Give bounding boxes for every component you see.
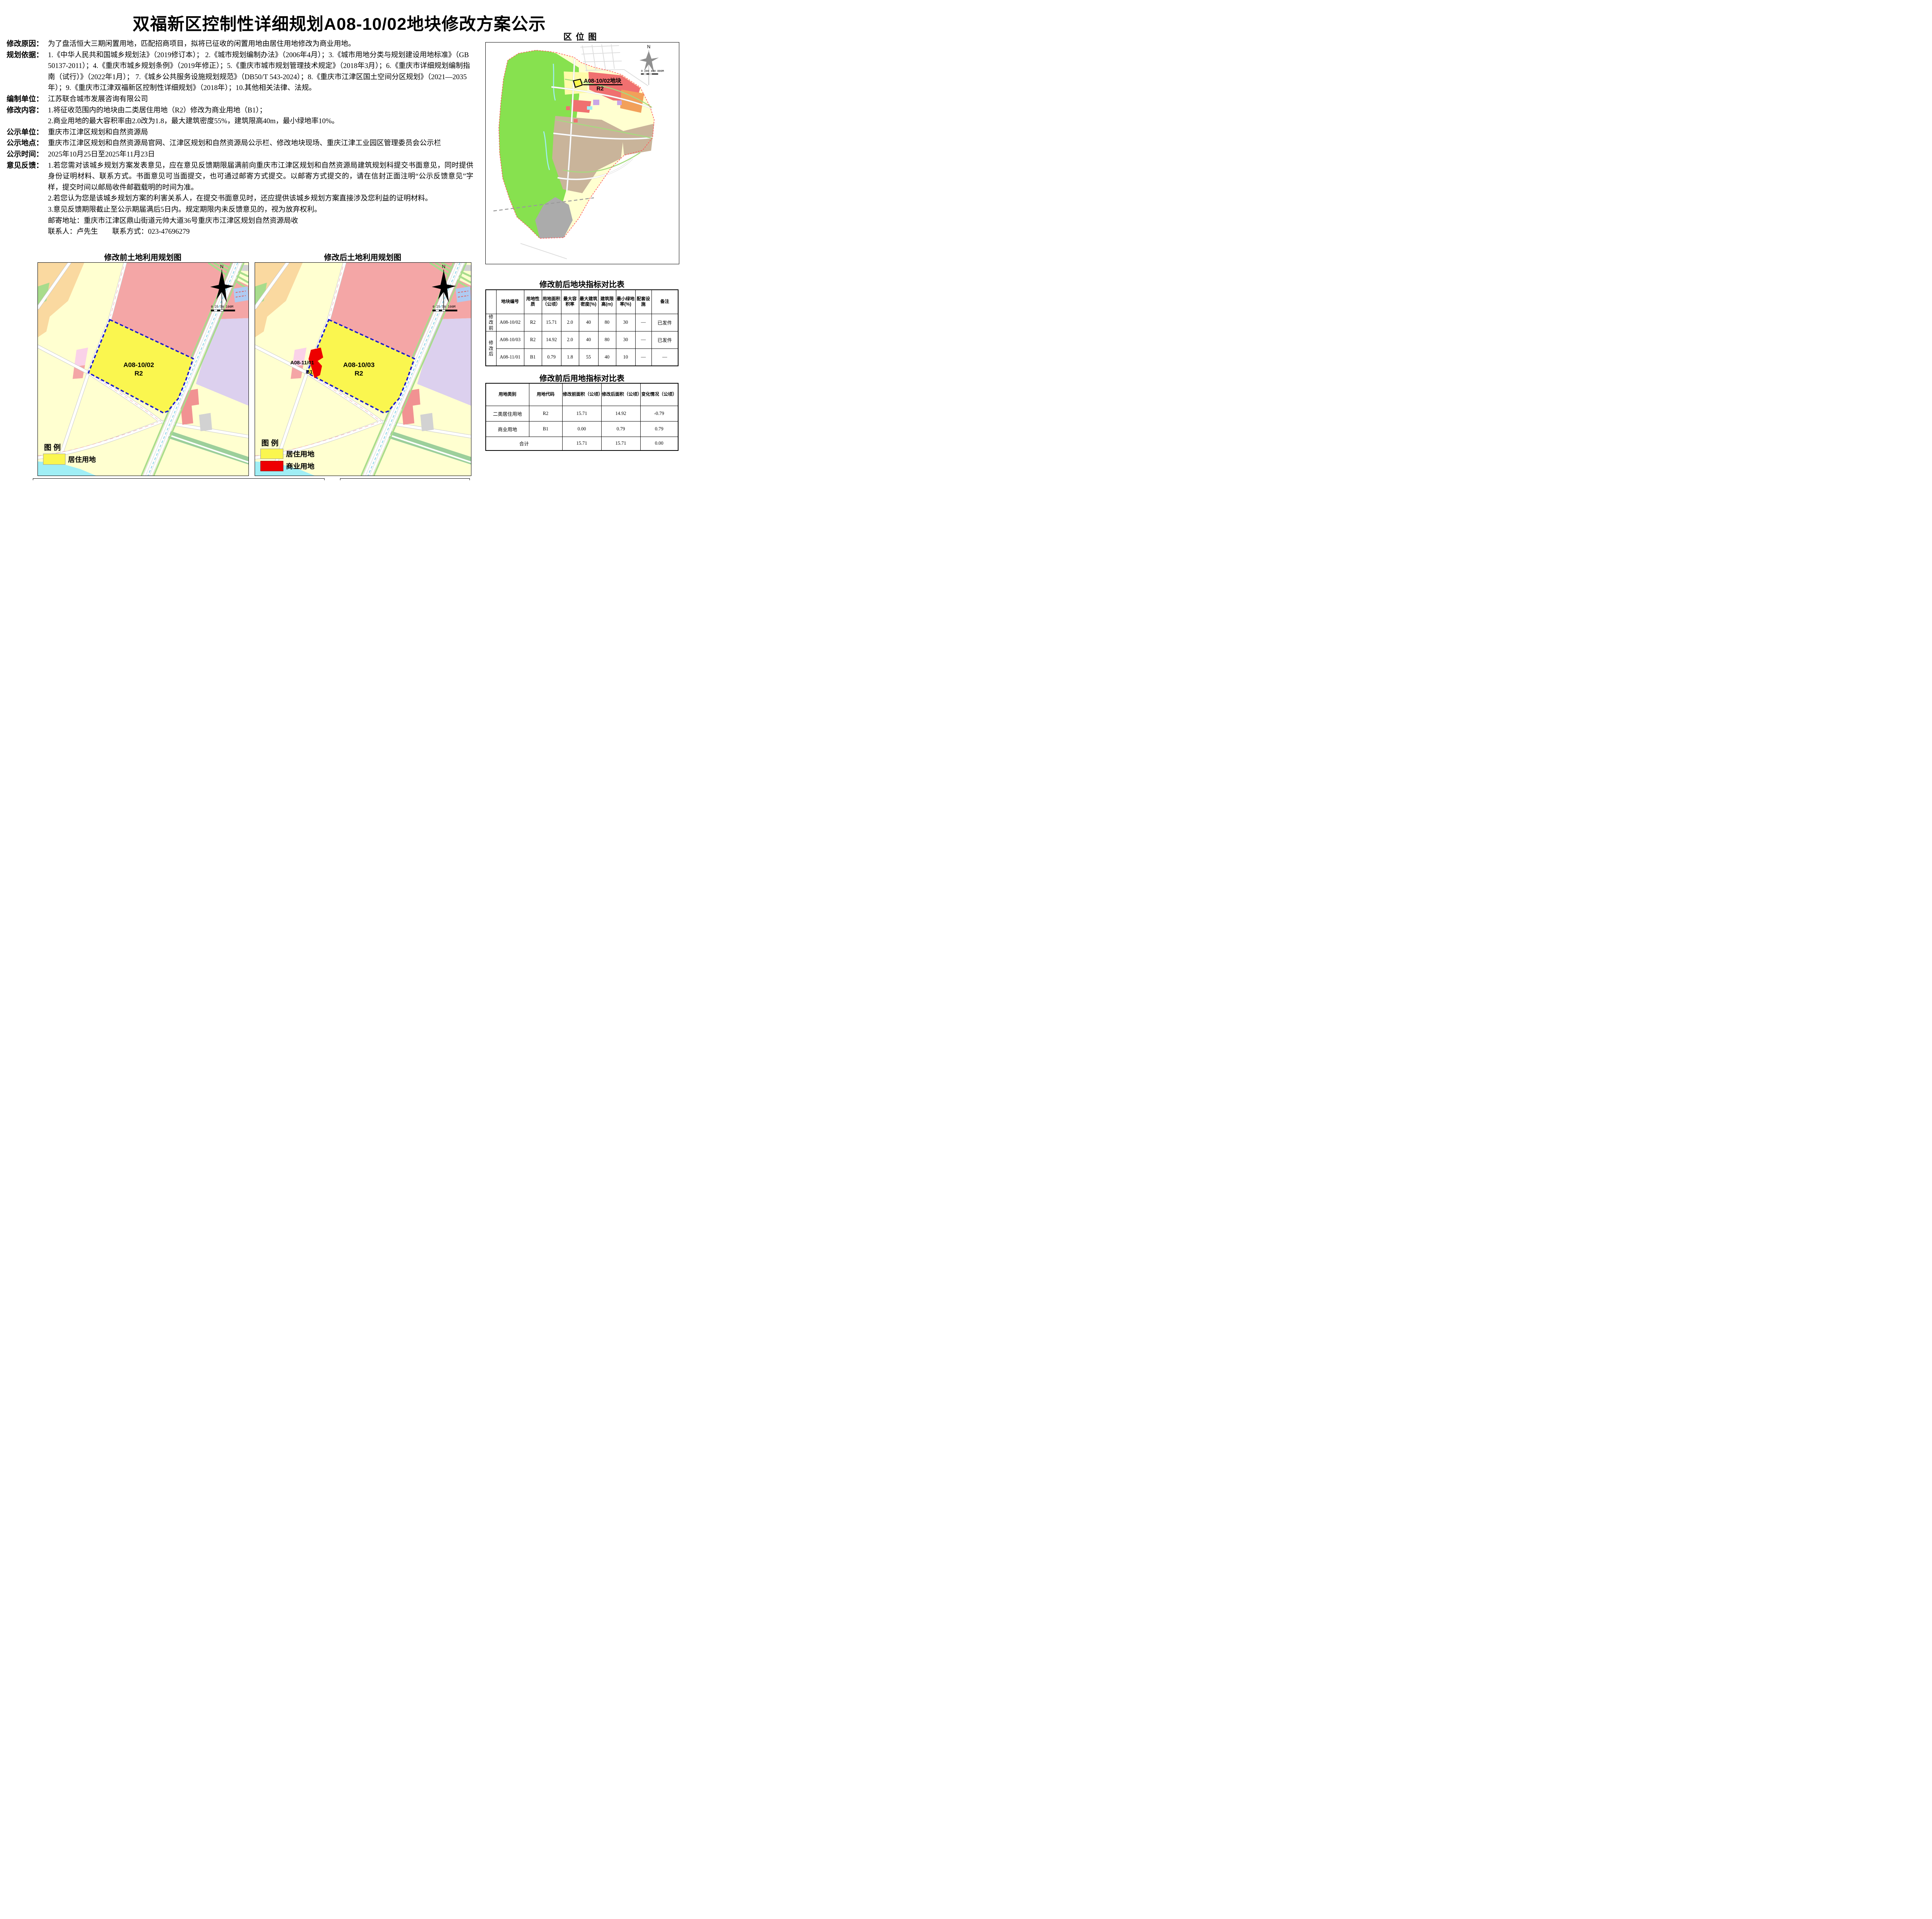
info-paragraph: 1.将征收范围内的地块由二类居住用地（R2）修改为商业用地（B1）； (48, 105, 473, 116)
cell: R2 (524, 331, 542, 348)
plot-code-label: R2 (597, 86, 604, 92)
svg-text:N: N (220, 264, 224, 269)
info-paragraph: 1.《中华人民共和国城乡规划法》（2019修订本）； 2.《城市规划编制办法》（… (48, 50, 473, 94)
header-cell (486, 290, 496, 314)
cell: 0.00 (640, 437, 678, 450)
plot2-code-label: B1 (306, 369, 313, 375)
cell: 14.92 (601, 406, 640, 421)
cell: 30 (616, 314, 635, 331)
scale-bar: 0 25 50 100M (433, 305, 457, 311)
cell: 14.92 (542, 331, 561, 348)
plot-id-label: A08-10/02 (123, 361, 154, 369)
notice-info-block: 修改原因： 为了盘活恒大三期闲置用地，匹配招商项目，拟将已征收的闲置用地由居住用… (7, 39, 473, 238)
header-cell: 建筑限高(m) (598, 290, 616, 314)
parcel-red (566, 106, 570, 110)
cell: A08-10/03 (496, 331, 524, 348)
info-paragraph: 重庆市江津区规划和自然资源局 (48, 127, 473, 138)
info-paragraph: 3.意见反馈期限截止至公示期届满后5日内。规定期限内未反馈意见的，视为放弃权利。 (48, 204, 473, 216)
info-paragraph: 2025年10月25日至2025年11月23日 (48, 149, 473, 160)
table-row: 修改前 A08-10/02 R2 15.71 2.0 40 80 30 — 已发… (486, 314, 678, 331)
cell: 10 (616, 348, 635, 366)
parcel-gray (420, 413, 434, 431)
after-map-panel: A08-10/03 R2 A08-11/01 B1 N 0 25 50 100M… (255, 262, 471, 476)
legend-swatch-residential (260, 449, 283, 459)
legend-title: 图 例 (44, 443, 61, 452)
plot-code-label: R2 (134, 370, 143, 377)
info-row-location: 公示地点： 重庆市江津区规划和自然资源局官网、江津区规划和自然资源局公示栏、修改… (7, 138, 473, 149)
cell: A08-11/01 (496, 348, 524, 366)
cell: 15.71 (601, 437, 640, 450)
plot-code-label: R2 (355, 370, 363, 377)
row-group-before: 修改前 (486, 314, 496, 331)
cell: 2.0 (561, 331, 579, 348)
info-label: 意见反馈： (7, 160, 48, 172)
legend-swatch-residential (43, 454, 65, 465)
info-label: 规划依据： (7, 50, 48, 61)
before-map-graphic: A08-10/02 R2 N 0 25 50 100M 图 例 居住用地 (38, 263, 248, 476)
landuse-table: 用地类别 用地代码 修改前面积（公顷） 修改后面积（公顷） 变化情况（公顷） 二… (485, 383, 679, 451)
cell: 40 (598, 348, 616, 366)
cell: 80 (598, 331, 616, 348)
cell: 0.79 (640, 421, 678, 437)
cell: 15.71 (562, 437, 601, 450)
legend-label-commercial: 商业用地 (286, 462, 315, 471)
cell: R2 (524, 314, 542, 331)
header-cell: 地块编号 (496, 290, 524, 314)
plot-id-label: A08-10/03 (343, 361, 374, 369)
cell: 40 (579, 314, 598, 331)
cell: 80 (598, 314, 616, 331)
header-cell: 修改后面积（公顷） (601, 383, 640, 406)
pond (456, 286, 471, 303)
cell: 40 (579, 331, 598, 348)
cell: — (635, 331, 651, 348)
header-cell: 用地性质 (524, 290, 542, 314)
total-label: 合计 (486, 437, 562, 450)
legend-title: 图 例 (261, 439, 278, 447)
cell: 55 (579, 348, 598, 366)
cell: — (635, 348, 651, 366)
header-cell: 配套设施 (635, 290, 651, 314)
table-total-row: 合计 15.71 15.71 0.00 (486, 437, 678, 450)
before-map-title: 修改前土地利用规划图 (37, 251, 248, 262)
svg-text:0 200 400 800M: 0 200 400 800M (641, 70, 664, 73)
plot-label: A08-10/02地块 (584, 77, 621, 84)
cutoff-box-left (33, 478, 325, 480)
header-cell: 用地类别 (486, 383, 529, 406)
cell: 30 (616, 331, 635, 348)
cell: B1 (529, 421, 562, 437)
info-paragraph: 2.商业用地的最大容积率由2.0改为1.8，最大建筑密度55%，建筑限高40m，… (48, 116, 473, 127)
header-cell: 最大建筑密度(%) (579, 290, 598, 314)
legend-swatch-commercial (260, 461, 283, 471)
north-arrow-icon: N (639, 44, 659, 85)
pond-icon (587, 106, 592, 110)
info-label: 修改原因： (7, 39, 48, 50)
table-row: 二类居住用地 R2 15.71 14.92 -0.79 (486, 406, 678, 421)
location-map-graphic: A08-10/02地块 R2 N 0 200 400 800M (486, 42, 679, 264)
cell: 二类居住用地 (486, 406, 529, 421)
cell: R2 (529, 406, 562, 421)
info-paragraph: 2.若您认为您是该城乡规划方案的利害关系人，在提交书面意见时，还应提供该城乡规划… (48, 193, 473, 204)
svg-text:0 25 50 100M: 0 25 50 100M (433, 305, 456, 309)
scale-bar: 0 25 50 100M (211, 305, 235, 311)
info-label: 公示单位： (7, 127, 48, 138)
cell: -0.79 (640, 406, 678, 421)
cell: B1 (524, 348, 542, 366)
cell: — (651, 348, 678, 366)
legend-label-residential: 居住用地 (68, 455, 96, 463)
info-row-publisher: 公示单位： 重庆市江津区规划和自然资源局 (7, 127, 473, 138)
parcel-tan (552, 116, 624, 193)
legend-label-residential: 居住用地 (286, 450, 315, 458)
svg-text:0 25 50 100M: 0 25 50 100M (211, 305, 233, 309)
cell: 15.71 (562, 406, 601, 421)
info-row-reason: 修改原因： 为了盘活恒大三期闲置用地，匹配招商项目，拟将已征收的闲置用地由居住用… (7, 39, 473, 50)
info-paragraph: 邮寄地址：重庆市江津区鼎山街道元帅大道36号重庆市江津区规划自然资源局收 (48, 216, 473, 227)
info-row-period: 公示时间： 2025年10月25日至2025年11月23日 (7, 149, 473, 160)
svg-text:N: N (442, 264, 446, 269)
parcel-purple (593, 100, 599, 105)
pond (233, 286, 248, 303)
before-map-panel: A08-10/02 R2 N 0 25 50 100M 图 例 居住用地 (37, 262, 249, 476)
info-label: 修改内容： (7, 105, 48, 116)
parcel-gray (199, 413, 212, 431)
after-map-title: 修改后土地利用规划图 (255, 251, 471, 262)
cell: 2.0 (561, 314, 579, 331)
plot-label-underline (583, 84, 622, 85)
location-map-title: 区位图 (485, 30, 679, 42)
landuse-table-title: 修改前后用地指标对比表 (485, 372, 679, 383)
info-row-basis: 规划依据： 1.《中华人民共和国城乡规划法》（2019修订本）； 2.《城市规划… (7, 50, 473, 94)
table-row: 商业用地 B1 0.00 0.79 0.79 (486, 421, 678, 437)
info-label: 编制单位： (7, 94, 48, 105)
info-paragraph: 重庆市江津区规划和自然资源局官网、江津区规划和自然资源局公示栏、修改地块现场、重… (48, 138, 473, 149)
info-label: 公示时间： (7, 149, 48, 160)
info-paragraph: 联系人：卢先生 联系方式：023-47696279 (48, 226, 473, 238)
info-paragraph: 江苏联合城市发展咨询有限公司 (48, 94, 473, 105)
header-cell: 修改前面积（公顷） (562, 383, 601, 406)
header-cell: 用地面积（公顷） (542, 290, 561, 314)
cell: 商业用地 (486, 421, 529, 437)
location-map-panel: A08-10/02地块 R2 N 0 200 400 800M (485, 42, 679, 264)
cell: 0.00 (562, 421, 601, 437)
header-cell: 备注 (651, 290, 678, 314)
cell: — (635, 314, 651, 331)
plot2-id-label: A08-11/01 (290, 360, 314, 365)
cell: A08-10/02 (496, 314, 524, 331)
plot-index-table: 地块编号 用地性质 用地面积（公顷） 最大容积率 最大建筑密度(%) 建筑限高(… (485, 289, 679, 366)
after-map-graphic: A08-10/03 R2 A08-11/01 B1 N 0 25 50 100M… (255, 263, 471, 476)
cell: 1.8 (561, 348, 579, 366)
table-header-row: 地块编号 用地性质 用地面积（公顷） 最大容积率 最大建筑密度(%) 建筑限高(… (486, 290, 678, 314)
header-cell: 最小绿地率(%) (616, 290, 635, 314)
info-label: 公示地点： (7, 138, 48, 149)
parcel-purple (617, 100, 622, 105)
row-group-after: 修改后 (486, 331, 496, 366)
cell: 0.79 (542, 348, 561, 366)
header-cell: 用地代码 (529, 383, 562, 406)
info-paragraph: 1.若您需对该城乡规划方案发表意见，应在意见反馈期限届满前向重庆市江津区规划和自… (48, 160, 473, 194)
info-paragraph: 为了盘活恒大三期闲置用地，匹配招商项目，拟将已征收的闲置用地由居住用地修改为商业… (48, 39, 473, 50)
svg-text:N: N (647, 44, 651, 49)
cell: 0.79 (601, 421, 640, 437)
cutoff-box-right (340, 478, 470, 480)
info-row-agency: 编制单位： 江苏联合城市发展咨询有限公司 (7, 94, 473, 105)
table-row: 修改后 A08-10/03 R2 14.92 2.0 40 80 30 — 已发… (486, 331, 678, 348)
plot-index-table-title: 修改前后地块指标对比表 (485, 278, 679, 289)
cell: 已发件 (651, 314, 678, 331)
info-row-feedback: 意见反馈： 1.若您需对该城乡规划方案发表意见，应在意见反馈期限届满前向重庆市江… (7, 160, 473, 238)
cell: 已发件 (651, 331, 678, 348)
header-cell: 变化情况（公顷） (640, 383, 678, 406)
table-header-row: 用地类别 用地代码 修改前面积（公顷） 修改后面积（公顷） 变化情况（公顷） (486, 383, 678, 406)
scale-bar: 0 200 400 800M (641, 70, 664, 75)
header-cell: 最大容积率 (561, 290, 579, 314)
table-row: A08-11/01 B1 0.79 1.8 55 40 10 — — (486, 348, 678, 366)
parcel-red (574, 119, 578, 122)
cell: 15.71 (542, 314, 561, 331)
info-row-content: 修改内容： 1.将征收范围内的地块由二类居住用地（R2）修改为商业用地（B1）；… (7, 105, 473, 127)
